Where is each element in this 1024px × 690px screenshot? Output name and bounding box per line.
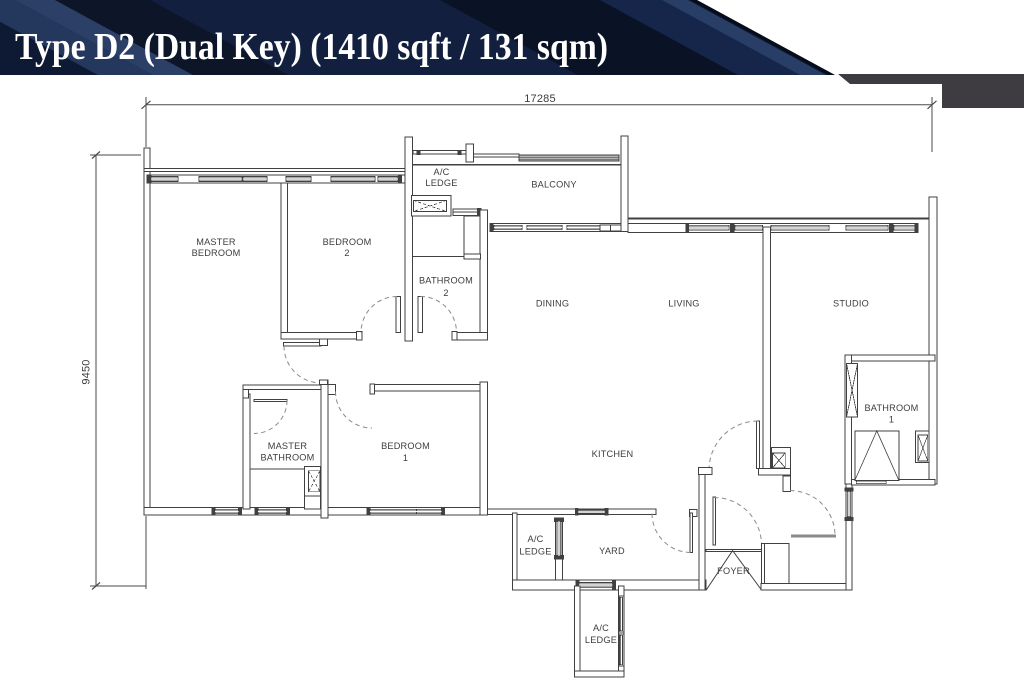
svg-text:LEDGE: LEDGE — [425, 178, 457, 188]
svg-text:KITCHEN: KITCHEN — [592, 449, 634, 459]
svg-text:2: 2 — [443, 288, 448, 298]
svg-text:9450: 9450 — [81, 359, 93, 384]
svg-text:A/C: A/C — [528, 534, 544, 544]
svg-text:LEDGE: LEDGE — [519, 547, 551, 557]
svg-text:BATHROOM: BATHROOM — [260, 452, 314, 462]
svg-text:A/C: A/C — [434, 167, 450, 177]
svg-text:BALCONY: BALCONY — [531, 180, 576, 190]
svg-text:2: 2 — [344, 248, 349, 258]
svg-text:BEDROOM: BEDROOM — [381, 441, 430, 451]
svg-text:LEDGE: LEDGE — [585, 635, 617, 645]
svg-text:BATHROOM: BATHROOM — [864, 403, 918, 413]
svg-text:Type D2 (Dual Key) (1410 sqft: Type D2 (Dual Key) (1410 sqft / 131 sqm) — [15, 26, 608, 68]
svg-text:STUDIO: STUDIO — [833, 299, 869, 309]
svg-text:MASTER: MASTER — [268, 441, 308, 451]
svg-text:BATHROOM: BATHROOM — [419, 276, 473, 286]
svg-text:17285: 17285 — [524, 93, 556, 105]
svg-text:A/C: A/C — [593, 623, 609, 633]
svg-text:YARD: YARD — [599, 546, 625, 556]
svg-text:LIVING: LIVING — [668, 299, 699, 309]
svg-text:1: 1 — [403, 453, 408, 463]
svg-text:1: 1 — [889, 415, 894, 425]
svg-text:MASTER: MASTER — [196, 237, 236, 247]
svg-text:FOYER: FOYER — [717, 566, 750, 576]
svg-text:BEDROOM: BEDROOM — [323, 237, 372, 247]
svg-text:DINING: DINING — [536, 299, 569, 309]
svg-text:BEDROOM: BEDROOM — [192, 248, 241, 258]
